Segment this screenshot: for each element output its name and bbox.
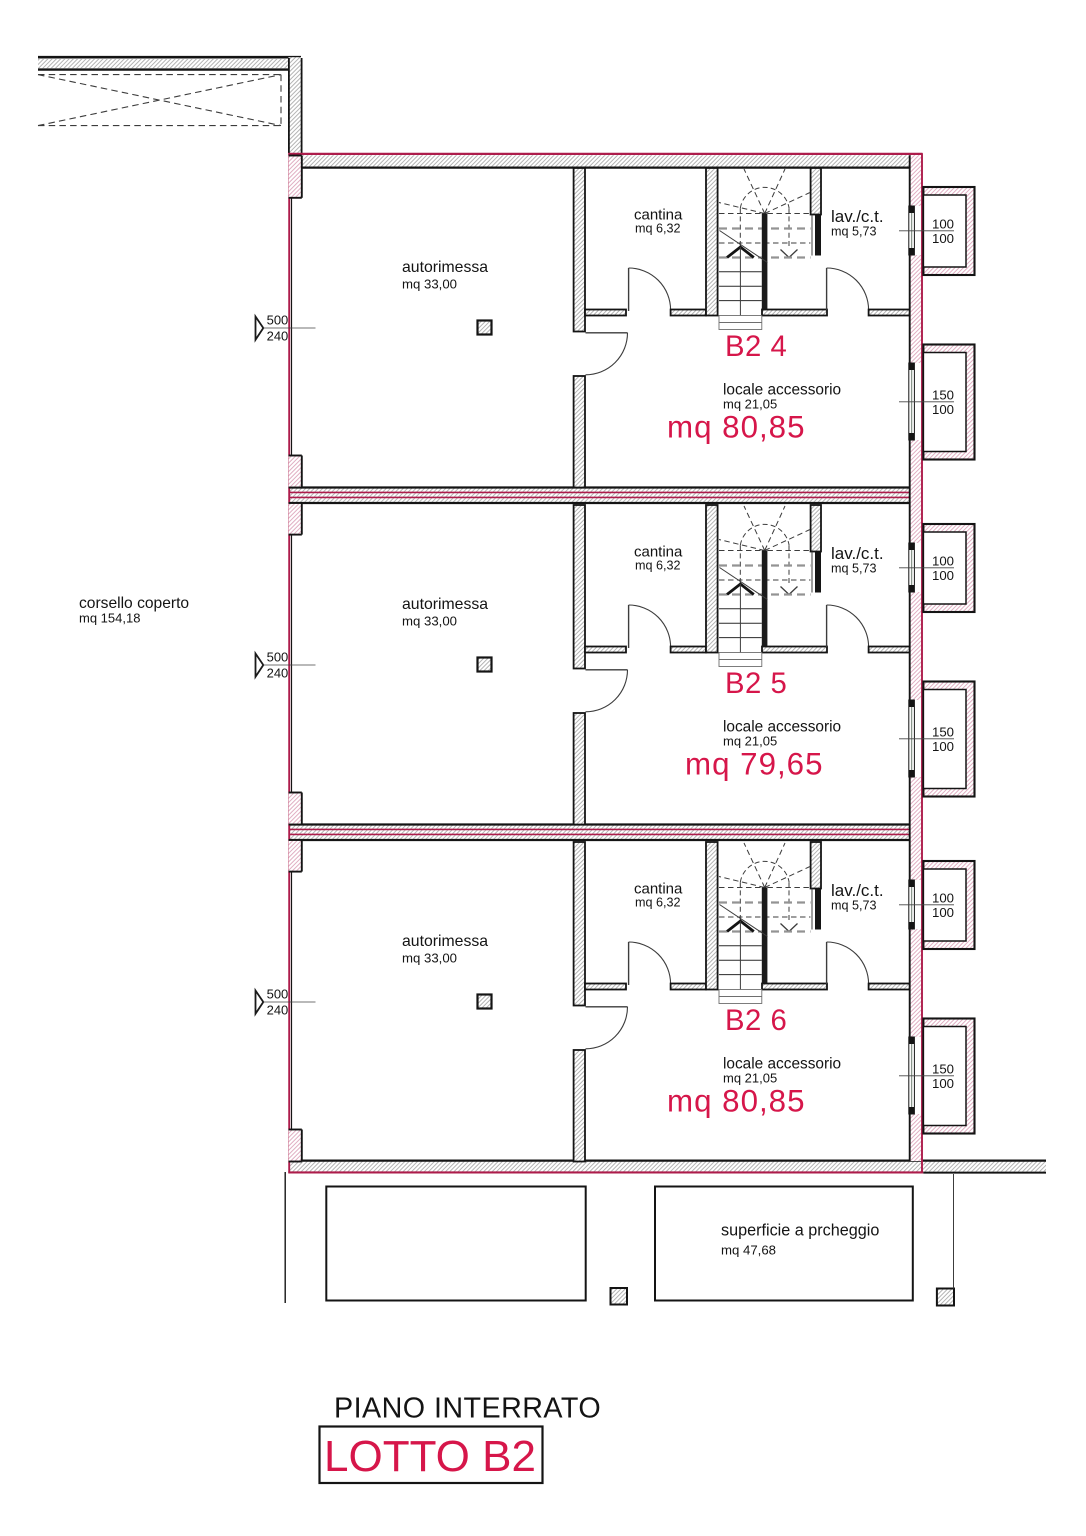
svg-text:500: 500 xyxy=(267,313,289,328)
svg-text:mq 6,32: mq 6,32 xyxy=(635,559,681,573)
svg-text:500: 500 xyxy=(267,650,289,665)
svg-text:100: 100 xyxy=(932,891,954,906)
svg-text:mq 6,32: mq 6,32 xyxy=(635,896,681,910)
svg-text:100: 100 xyxy=(932,554,954,569)
svg-text:superficie a prcheggio: superficie a prcheggio xyxy=(721,1222,879,1240)
svg-text:lav./c.t.: lav./c.t. xyxy=(831,544,884,563)
svg-text:LOTTO B2: LOTTO B2 xyxy=(324,1432,536,1481)
svg-text:mq 5,73: mq 5,73 xyxy=(831,562,877,576)
svg-text:mq 80,85: mq 80,85 xyxy=(667,1084,806,1119)
svg-text:100: 100 xyxy=(932,1076,954,1091)
svg-text:mq 33,00: mq 33,00 xyxy=(402,951,457,966)
svg-text:PIANO INTERRATO: PIANO INTERRATO xyxy=(334,1393,601,1425)
svg-text:mq 154,18: mq 154,18 xyxy=(79,611,140,626)
svg-text:100: 100 xyxy=(932,739,954,754)
svg-text:100: 100 xyxy=(932,217,954,232)
svg-text:mq 33,00: mq 33,00 xyxy=(402,614,457,629)
svg-text:mq 79,65: mq 79,65 xyxy=(685,747,824,782)
svg-text:150: 150 xyxy=(932,1062,954,1077)
svg-text:mq 5,73: mq 5,73 xyxy=(831,899,877,913)
svg-text:corsello coperto: corsello coperto xyxy=(79,595,189,612)
svg-text:100: 100 xyxy=(932,568,954,583)
svg-text:100: 100 xyxy=(932,905,954,920)
svg-text:B2 4: B2 4 xyxy=(725,330,787,363)
svg-text:mq 6,32: mq 6,32 xyxy=(635,222,681,236)
svg-text:150: 150 xyxy=(932,388,954,403)
svg-text:100: 100 xyxy=(932,402,954,417)
svg-text:240: 240 xyxy=(267,1003,289,1018)
svg-text:autorimessa: autorimessa xyxy=(402,933,488,950)
svg-text:autorimessa: autorimessa xyxy=(402,259,488,276)
svg-text:lav./c.t.: lav./c.t. xyxy=(831,881,884,900)
svg-text:100: 100 xyxy=(932,231,954,246)
svg-text:autorimessa: autorimessa xyxy=(402,596,488,613)
svg-text:500: 500 xyxy=(267,987,289,1002)
svg-text:mq 80,85: mq 80,85 xyxy=(667,410,806,445)
svg-text:B2 5: B2 5 xyxy=(725,667,787,700)
svg-text:B2 6: B2 6 xyxy=(725,1004,787,1037)
svg-text:lav./c.t.: lav./c.t. xyxy=(831,207,884,226)
svg-text:mq 5,73: mq 5,73 xyxy=(831,225,877,239)
svg-text:240: 240 xyxy=(267,666,289,681)
svg-text:240: 240 xyxy=(267,329,289,344)
svg-text:150: 150 xyxy=(932,725,954,740)
svg-text:mq 47,68: mq 47,68 xyxy=(721,1243,776,1258)
svg-text:mq 33,00: mq 33,00 xyxy=(402,277,457,292)
